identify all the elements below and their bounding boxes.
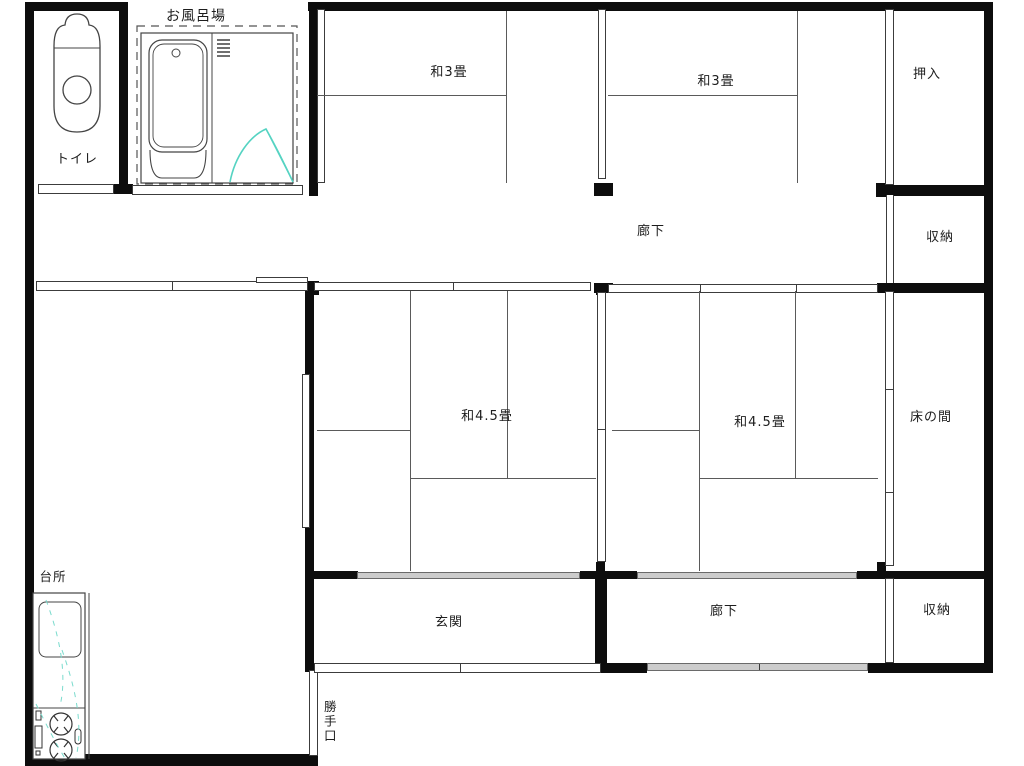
tatami-line xyxy=(612,430,700,431)
sliding-door-tokonoma xyxy=(885,291,894,566)
wall xyxy=(580,571,637,579)
room-label-washitsu3-a: 和3畳 xyxy=(430,66,467,80)
room-label-washitsu45-b: 和4.5畳 xyxy=(734,416,786,430)
tatami-line xyxy=(699,478,878,479)
kitchen-counter xyxy=(32,592,94,760)
tatami-line xyxy=(317,95,507,96)
room-label-storage-bottom: 収納 xyxy=(923,604,951,618)
floor-plan: お風呂場 トイレ 和3畳 和3畳 押入 廊下 収納 和4.5畳 和4.5畳 床の… xyxy=(0,0,1024,766)
room-label-kitchen: 台所 xyxy=(39,570,66,584)
room-label-genkan: 玄関 xyxy=(435,616,463,630)
wall xyxy=(857,571,993,579)
sliding-panel xyxy=(647,663,868,671)
toilet-door-threshold xyxy=(38,184,114,194)
sliding-door xyxy=(598,9,606,179)
wall xyxy=(868,663,993,673)
sliding-door-oshiire xyxy=(885,9,894,185)
tatami-line xyxy=(699,291,700,571)
backdoor-door xyxy=(309,670,318,756)
room-label-hallway-bottom: 廊下 xyxy=(710,605,738,619)
tatami-line xyxy=(797,11,798,183)
entrance-sliding-door xyxy=(314,663,601,673)
bath-unit xyxy=(132,6,307,196)
room-label-toilet: トイレ xyxy=(56,153,98,167)
room-label-hallway-top: 廊下 xyxy=(637,225,665,239)
room-label-oshiire: 押入 xyxy=(913,68,941,82)
room-label-backdoor: 勝手口 xyxy=(322,700,336,744)
thin-partition xyxy=(886,195,894,283)
sliding-panel xyxy=(357,572,580,579)
wall xyxy=(595,571,607,672)
tatami-line xyxy=(410,478,596,479)
wall xyxy=(306,571,358,579)
room-label-washitsu45-a: 和4.5畳 xyxy=(461,410,513,424)
wall xyxy=(877,185,993,196)
wall xyxy=(876,183,886,197)
tatami-line xyxy=(506,11,507,183)
sliding-door xyxy=(608,284,878,293)
sliding-door xyxy=(314,282,591,291)
wall xyxy=(119,2,128,193)
sliding-door xyxy=(302,374,310,528)
wall xyxy=(113,184,133,194)
tatami-line xyxy=(317,430,411,431)
room-label-storage-top: 収納 xyxy=(926,231,954,245)
sliding-door xyxy=(597,292,606,562)
wall xyxy=(601,663,647,673)
wall xyxy=(594,183,613,196)
room-label-washitsu3-b: 和3畳 xyxy=(697,75,734,89)
room-label-bath: お風呂場 xyxy=(166,9,226,24)
sliding-panel xyxy=(637,572,857,579)
sliding-door-overlap xyxy=(256,277,308,283)
room-label-tokonoma: 床の間 xyxy=(910,411,952,425)
tatami-line xyxy=(795,291,796,478)
tatami-line xyxy=(507,291,508,478)
wall xyxy=(877,283,993,293)
tatami-line xyxy=(608,95,798,96)
sliding-door xyxy=(317,9,325,183)
storage-door xyxy=(885,578,894,663)
toilet-icon xyxy=(40,10,115,145)
tatami-line xyxy=(410,291,411,571)
